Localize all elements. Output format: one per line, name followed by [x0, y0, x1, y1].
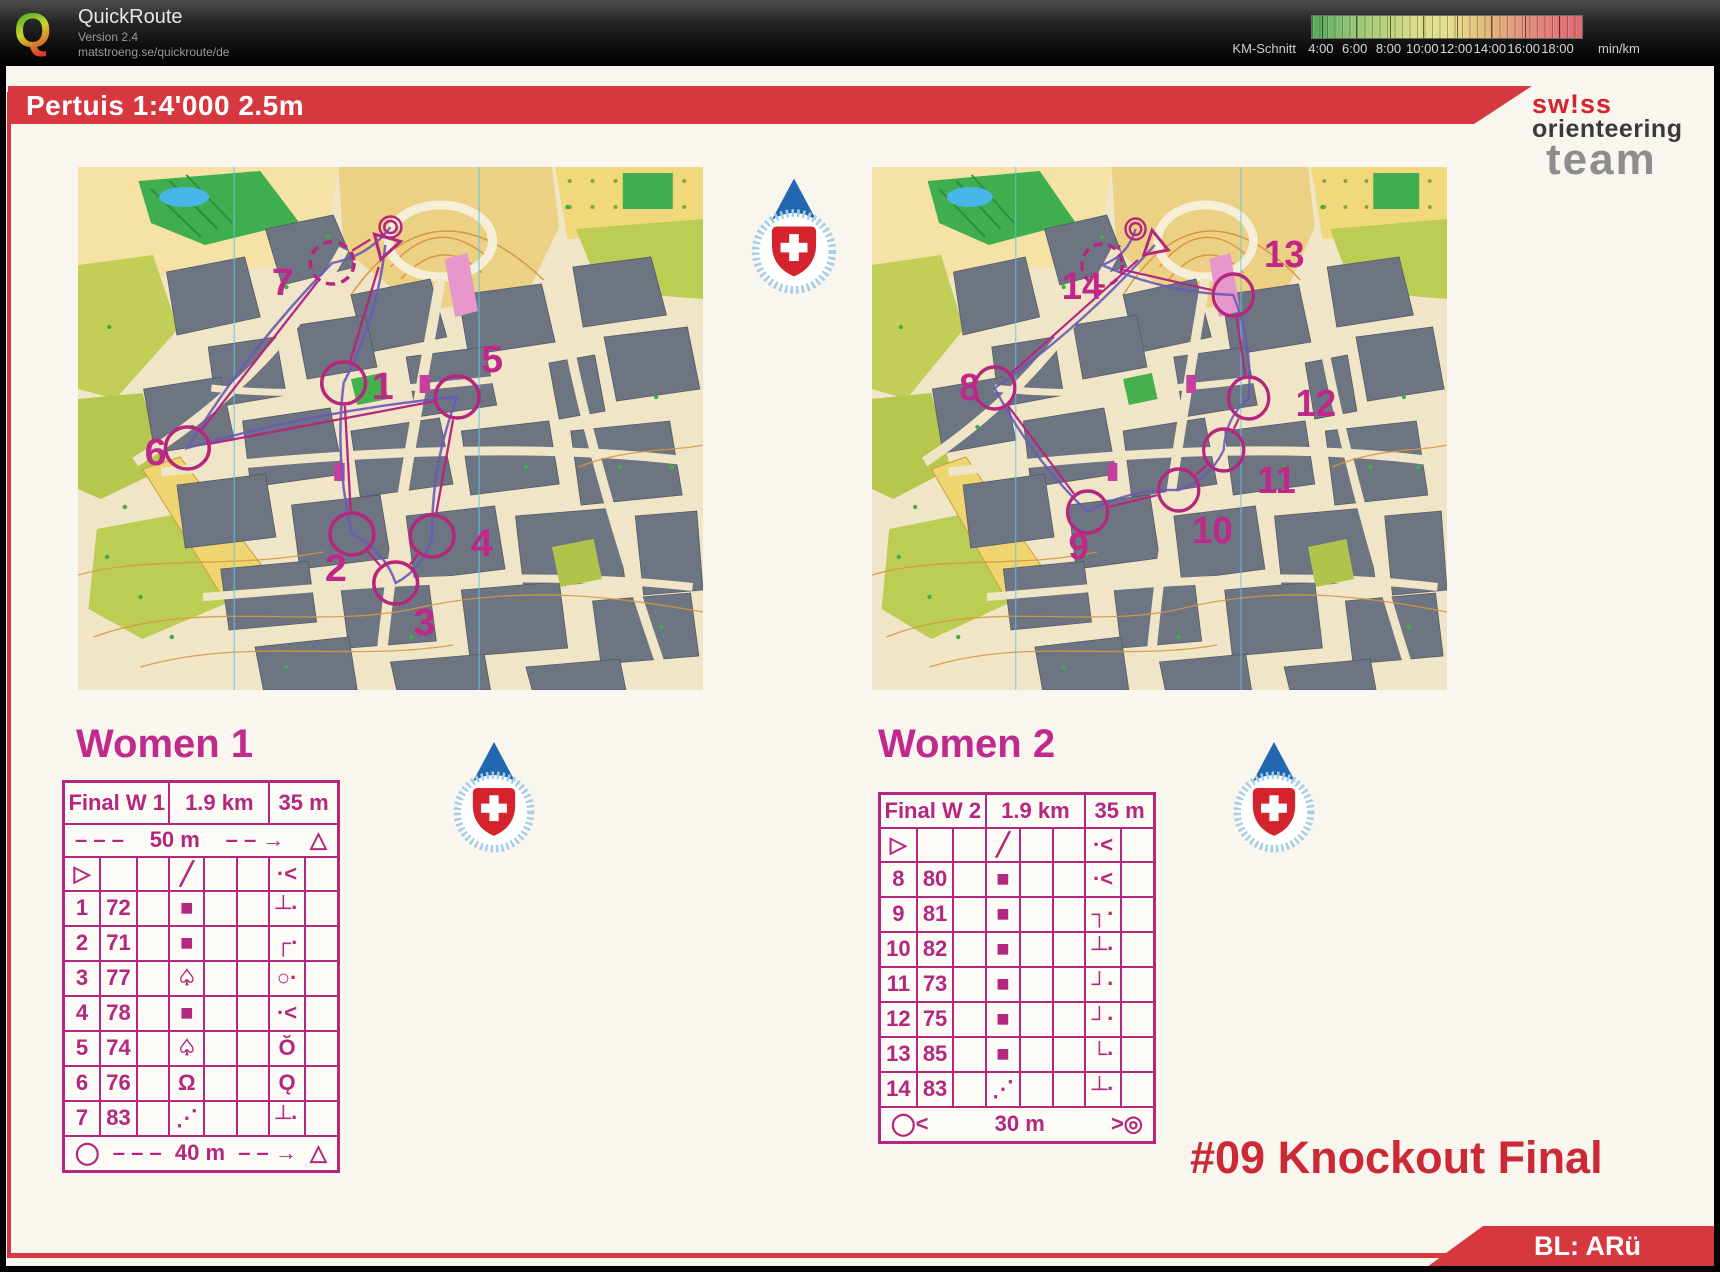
cd-cell: 11: [880, 967, 917, 1002]
cd-cell: [204, 996, 236, 1031]
cd-cell: ■: [986, 1002, 1021, 1037]
control-number: 10: [1192, 508, 1233, 551]
cd-cell: 80: [917, 862, 954, 897]
cd-cell: [1053, 897, 1085, 932]
cd-cell: [1020, 862, 1052, 897]
cd-cell: ┴·: [1085, 932, 1121, 967]
cd-cell: [137, 1101, 170, 1136]
cd-table: Final W 21.9 km35 m▷╱·<880■·<981■┐·1082■…: [878, 792, 1156, 1144]
cd-cell: ▷: [64, 857, 101, 891]
pace-legend-label: KM-Schnitt: [1208, 41, 1296, 56]
cd-cell: [953, 1037, 985, 1072]
cd-cell: ■: [986, 862, 1021, 897]
cd-cell: [237, 891, 269, 926]
cd-cell: 35 m: [269, 782, 338, 824]
cd-finish-part: – – –: [75, 827, 124, 853]
cd-row: 271■┌·: [64, 926, 339, 961]
control-number: 14: [1062, 264, 1103, 307]
control-number: 6: [145, 432, 167, 474]
cd-cell: ▷: [880, 828, 917, 862]
cd-cell: ·<: [1085, 828, 1121, 862]
pace-tick-label: 10:00: [1405, 41, 1439, 56]
pace-tick: [1390, 16, 1391, 38]
cd-cell: [1053, 1072, 1085, 1107]
quickroute-window: Pertuis 1:4'000 2.5m sw!ss orienteering …: [0, 0, 1720, 1272]
cd-cell: [237, 1066, 269, 1101]
cd-cell: [1121, 1002, 1155, 1037]
cd-finish-part: ◯<: [891, 1111, 928, 1137]
cd-cell: 4: [64, 996, 101, 1031]
cd-cell: [204, 857, 236, 891]
cd-row: 172■┴·: [64, 891, 339, 926]
control-number: 2: [325, 548, 347, 590]
cd-row: 377♤○·: [64, 961, 339, 996]
cd-table: Final W 11.9 km35 m– – –50 m– – →△▷╱·<17…: [62, 780, 340, 1173]
cd-cell: [137, 996, 170, 1031]
cd-cell: Ǫ: [269, 1066, 305, 1101]
cd-cell: [305, 961, 339, 996]
cd-cell: [237, 857, 269, 891]
cd-cell: – – –50 m– – →△: [64, 824, 339, 857]
cd-row: 574♤Ŏ: [64, 1031, 339, 1066]
control-number: 9: [1068, 524, 1088, 567]
cd-cell: [1020, 828, 1052, 862]
cd-cell: [137, 857, 170, 891]
cd-cell: ╱: [986, 828, 1021, 862]
cd-cell: 73: [917, 967, 954, 1002]
app-version: Version 2.4: [78, 30, 138, 44]
cd-cell: [1053, 862, 1085, 897]
cd-cell: [1121, 897, 1155, 932]
cd-row: – – –50 m– – →△: [64, 824, 339, 857]
cd-row: 1173■┘·: [880, 967, 1155, 1002]
cd-cell: 3: [64, 961, 101, 996]
cd-cell: ┴·: [269, 891, 305, 926]
cd-cell: [1053, 967, 1085, 1002]
cd-cell: [204, 926, 236, 961]
cd-row: 1483⋰┴·: [880, 1072, 1155, 1107]
logo-line-swiss: sw!ss: [1532, 92, 1717, 117]
pace-tick: [1491, 16, 1492, 38]
cd-cell: [953, 862, 985, 897]
cd-cell: ■: [169, 926, 204, 961]
cd-row: 676ΩǪ: [64, 1066, 339, 1101]
cd-cell: [204, 1031, 236, 1066]
cd-cell: [305, 996, 339, 1031]
cd-cell: 71: [100, 926, 137, 961]
cd-cell: ┐·: [1085, 897, 1121, 932]
cd-cell: 77: [100, 961, 137, 996]
cd-cell: [137, 1066, 170, 1101]
pace-tick: [1322, 16, 1323, 38]
cd-cell: [100, 857, 137, 891]
cd-cell: ┌·: [269, 926, 305, 961]
app-title: QuickRoute: [78, 6, 183, 29]
cd-cell: 10: [880, 932, 917, 967]
cd-cell: [1020, 932, 1052, 967]
cd-cell: [1020, 967, 1052, 1002]
cd-cell: 83: [100, 1101, 137, 1136]
course-map-women-2: 891011121314: [872, 167, 1447, 690]
cd-cell: 9: [880, 897, 917, 932]
pace-tick-labels: 4:006:008:0010:0012:0014:0016:0018:00: [1304, 41, 1574, 56]
cd-cell: ╱: [169, 857, 204, 891]
cd-cell: [917, 828, 954, 862]
cd-row: Final W 21.9 km35 m: [880, 794, 1155, 828]
cd-cell: ◯<30 m>◎: [880, 1107, 1155, 1143]
cd-cell: [1020, 897, 1052, 932]
cd-cell: [953, 828, 985, 862]
cd-cell: ·<: [1085, 862, 1121, 897]
cd-cell: [305, 857, 339, 891]
cd-cell: [1121, 932, 1155, 967]
pace-tick: [1423, 16, 1424, 38]
cd-cell: 72: [100, 891, 137, 926]
window-border-left: [0, 66, 6, 1272]
cd-cell: 35 m: [1085, 794, 1154, 828]
cd-finish-part: ◯: [75, 1140, 100, 1166]
cd-cell: [137, 1031, 170, 1066]
cd-cell: ♤: [169, 961, 204, 996]
cd-cell: [137, 961, 170, 996]
quickroute-logo-icon: Q: [14, 4, 62, 60]
cd-cell: [1121, 828, 1155, 862]
cd-row: ▷╱·<: [880, 828, 1155, 862]
event-title: #09 Knockout Final: [1190, 1132, 1630, 1184]
cd-cell: [237, 961, 269, 996]
cd-cell: ┘·: [1085, 1002, 1121, 1037]
cd-cell: Final W 2: [880, 794, 986, 828]
window-border-right: [1714, 66, 1720, 1272]
cd-cell: 7: [64, 1101, 101, 1136]
control-number: 13: [1264, 232, 1305, 275]
cd-finish-part: 30 m: [995, 1111, 1045, 1137]
pace-tick-label: 12:00: [1439, 41, 1473, 56]
pace-tick-label: 16:00: [1507, 41, 1541, 56]
cd-cell: [137, 891, 170, 926]
cd-cell: [305, 1031, 339, 1066]
cd-cell: ┘·: [1085, 967, 1121, 1002]
cd-cell: ◯– – –40 m– – →△: [64, 1136, 339, 1172]
cd-cell: ┴·: [269, 1101, 305, 1136]
swiss-cross-emblem-right: [1228, 740, 1320, 858]
cd-cell: 13: [880, 1037, 917, 1072]
cd-cell: [953, 1072, 985, 1107]
cd-cell: ■: [169, 996, 204, 1031]
cd-cell: 81: [917, 897, 954, 932]
cd-cell: [1053, 1037, 1085, 1072]
cd-finish-part: 50 m: [150, 827, 200, 853]
cd-cell: 78: [100, 996, 137, 1031]
cd-cell: [305, 1101, 339, 1136]
cd-finish-part: >◎: [1111, 1111, 1143, 1137]
cd-cell: 1.9 km: [169, 782, 269, 824]
cd-cell: [953, 967, 985, 1002]
cd-row: 1275■┘·: [880, 1002, 1155, 1037]
control-number: 11: [1257, 458, 1295, 501]
cd-cell: ⋰: [986, 1072, 1021, 1107]
cd-cell: Final W 1: [64, 782, 170, 824]
cd-cell: [1121, 862, 1155, 897]
cd-cell: 85: [917, 1037, 954, 1072]
cd-cell: 5: [64, 1031, 101, 1066]
control-number: 12: [1296, 381, 1337, 424]
logo-line-team: team: [1546, 141, 1717, 179]
course-map-women-1: 1234567: [78, 167, 703, 690]
cd-cell: [204, 1101, 236, 1136]
cd-finish-part: △: [310, 827, 327, 853]
cd-cell: [237, 996, 269, 1031]
cd-cell: [237, 1031, 269, 1066]
cd-cell: 1: [64, 891, 101, 926]
cd-cell: [1053, 1002, 1085, 1037]
cd-cell: └·: [1085, 1037, 1121, 1072]
pace-tick: [1559, 16, 1560, 38]
cd-cell: ■: [986, 1037, 1021, 1072]
pace-gradient-bar: [1311, 15, 1583, 39]
pace-gradient-cells: [1312, 16, 1582, 38]
cd-finish-part: 40 m: [175, 1140, 225, 1166]
cd-cell: ■: [169, 891, 204, 926]
swiss-cross-emblem-top: [746, 176, 842, 300]
swiss-orienteering-team-logo: sw!ss orienteering team: [1532, 92, 1717, 179]
cd-cell: [204, 891, 236, 926]
cd-cell: [237, 926, 269, 961]
cd-finish-part: △: [310, 1140, 327, 1166]
cd-cell: ♤: [169, 1031, 204, 1066]
cd-row: 981■┐·: [880, 897, 1155, 932]
cd-cell: 8: [880, 862, 917, 897]
pace-tick: [1356, 16, 1357, 38]
pace-tick-label: 14:00: [1473, 41, 1507, 56]
cd-cell: ·<: [269, 857, 305, 891]
course-heading-women-1: Women 1: [76, 722, 253, 767]
control-number: 3: [413, 602, 435, 644]
cd-cell: Ŏ: [269, 1031, 305, 1066]
cd-row: 478■·<: [64, 996, 339, 1031]
cd-cell: ┴·: [1085, 1072, 1121, 1107]
cd-row: Final W 11.9 km35 m: [64, 782, 339, 824]
cd-cell: [1121, 967, 1155, 1002]
cd-cell: ○·: [269, 961, 305, 996]
control-number: 1: [372, 366, 394, 408]
cd-cell: [1053, 828, 1085, 862]
cd-cell: [204, 1066, 236, 1101]
cd-cell: [1121, 1072, 1155, 1107]
cd-cell: 83: [917, 1072, 954, 1107]
cd-row: 1385■└·: [880, 1037, 1155, 1072]
pace-tick: [1525, 16, 1526, 38]
cd-cell: ■: [986, 967, 1021, 1002]
cd-cell: ⋰: [169, 1101, 204, 1136]
cd-row: ▷╱·<: [64, 857, 339, 891]
cd-cell: 82: [917, 932, 954, 967]
cd-cell: [137, 926, 170, 961]
cd-cell: [305, 891, 339, 926]
cd-finish-part: – – →: [226, 827, 285, 853]
cd-cell: [204, 961, 236, 996]
cd-cell: Ω: [169, 1066, 204, 1101]
cd-cell: [305, 1066, 339, 1101]
cd-cell: ■: [986, 932, 1021, 967]
cd-cell: 14: [880, 1072, 917, 1107]
cd-cell: [1053, 932, 1085, 967]
cd-cell: [953, 897, 985, 932]
pace-tick-label: 4:00: [1304, 41, 1338, 56]
swiss-cross-emblem-left: [448, 740, 540, 858]
pace-tick-label: 18:00: [1541, 41, 1575, 56]
cd-cell: 74: [100, 1031, 137, 1066]
pace-tick-label: 6:00: [1338, 41, 1372, 56]
pace-unit: min/km: [1598, 41, 1640, 56]
control-number: 5: [481, 339, 503, 381]
cd-cell: 1.9 km: [986, 794, 1086, 828]
cd-cell: 6: [64, 1066, 101, 1101]
course-heading-women-2: Women 2: [878, 722, 1055, 767]
cd-cell: [305, 926, 339, 961]
cd-finish-part: – – →: [238, 1140, 297, 1166]
cd-cell: [1020, 1002, 1052, 1037]
cd-cell: 12: [880, 1002, 917, 1037]
app-title-bar: Q QuickRoute Version 2.4 matstroeng.se/q…: [0, 0, 1720, 66]
pace-tick: [1457, 16, 1458, 38]
cd-cell: ■: [986, 897, 1021, 932]
cd-row: 1082■┴·: [880, 932, 1155, 967]
pace-tick-label: 8:00: [1372, 41, 1406, 56]
cd-row: ◯– – –40 m– – →△: [64, 1136, 339, 1172]
cd-cell: [237, 1101, 269, 1136]
cd-cell: [1020, 1072, 1052, 1107]
cd-cell: [1121, 1037, 1155, 1072]
cd-row: 880■·<: [880, 862, 1155, 897]
cd-cell: [953, 1002, 985, 1037]
cd-row: 783⋰┴·: [64, 1101, 339, 1136]
map-title: Pertuis 1:4'000 2.5m: [26, 90, 304, 122]
cd-cell: ·<: [269, 996, 305, 1031]
cd-cell: 75: [917, 1002, 954, 1037]
control-number: 7: [272, 262, 294, 304]
cd-cell: 76: [100, 1066, 137, 1101]
cd-row: ◯<30 m>◎: [880, 1107, 1155, 1143]
cd-cell: [1020, 1037, 1052, 1072]
cd-cell: 2: [64, 926, 101, 961]
cd-finish-part: – – –: [113, 1140, 162, 1166]
app-url: matstroeng.se/quickroute/de: [78, 45, 229, 59]
sheet-frame-left: [7, 92, 11, 1258]
window-border-bottom: [0, 1266, 1720, 1272]
control-number: 4: [471, 523, 493, 565]
control-number: 8: [959, 365, 979, 408]
cd-cell: [953, 932, 985, 967]
